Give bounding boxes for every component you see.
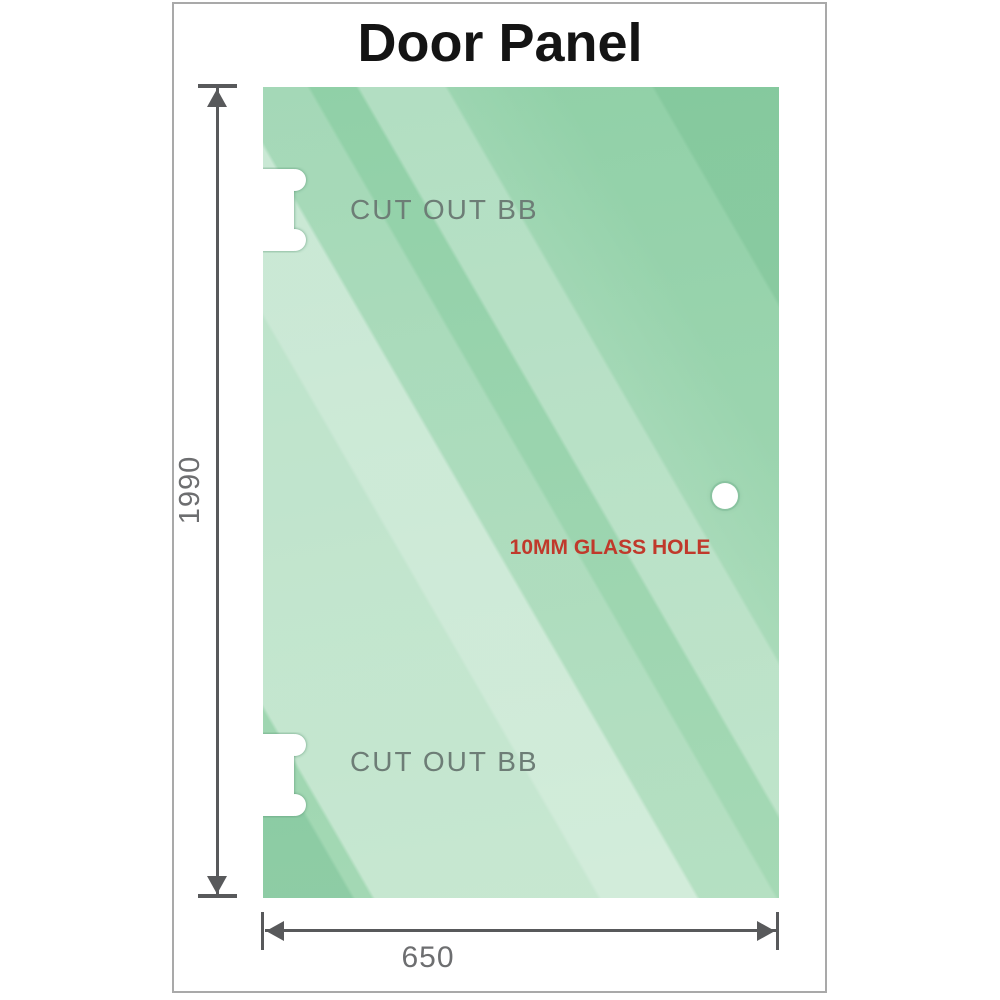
cutout-top-label: CUT OUT BB bbox=[350, 194, 610, 226]
arrow-left-icon bbox=[266, 921, 284, 941]
height-dimension-value: 1990 bbox=[172, 430, 208, 550]
width-dimension-line bbox=[265, 929, 776, 932]
hinge-cutout-bottom bbox=[263, 732, 311, 818]
width-dimension-value: 650 bbox=[388, 941, 468, 975]
hinge-cutout-top bbox=[263, 167, 311, 253]
arrow-right-icon bbox=[757, 921, 775, 941]
width-dimension-tick-right bbox=[776, 912, 779, 950]
glass-hole-label: 10MM GLASS HOLE bbox=[505, 536, 715, 560]
drawing-canvas: Door Panel CUT OUT BB CUT OUT BB 10MM GL… bbox=[0, 0, 1000, 1000]
cutout-bottom-label: CUT OUT BB bbox=[350, 746, 610, 778]
height-dimension-tick-bottom bbox=[198, 894, 237, 898]
height-dimension-tick-top bbox=[198, 84, 237, 88]
width-dimension-tick-left bbox=[261, 912, 264, 950]
arrow-up-icon bbox=[207, 89, 227, 107]
height-dimension-line bbox=[216, 88, 219, 895]
arrow-down-icon bbox=[207, 876, 227, 894]
page-title: Door Panel bbox=[173, 12, 827, 74]
glass-hole bbox=[712, 483, 738, 509]
